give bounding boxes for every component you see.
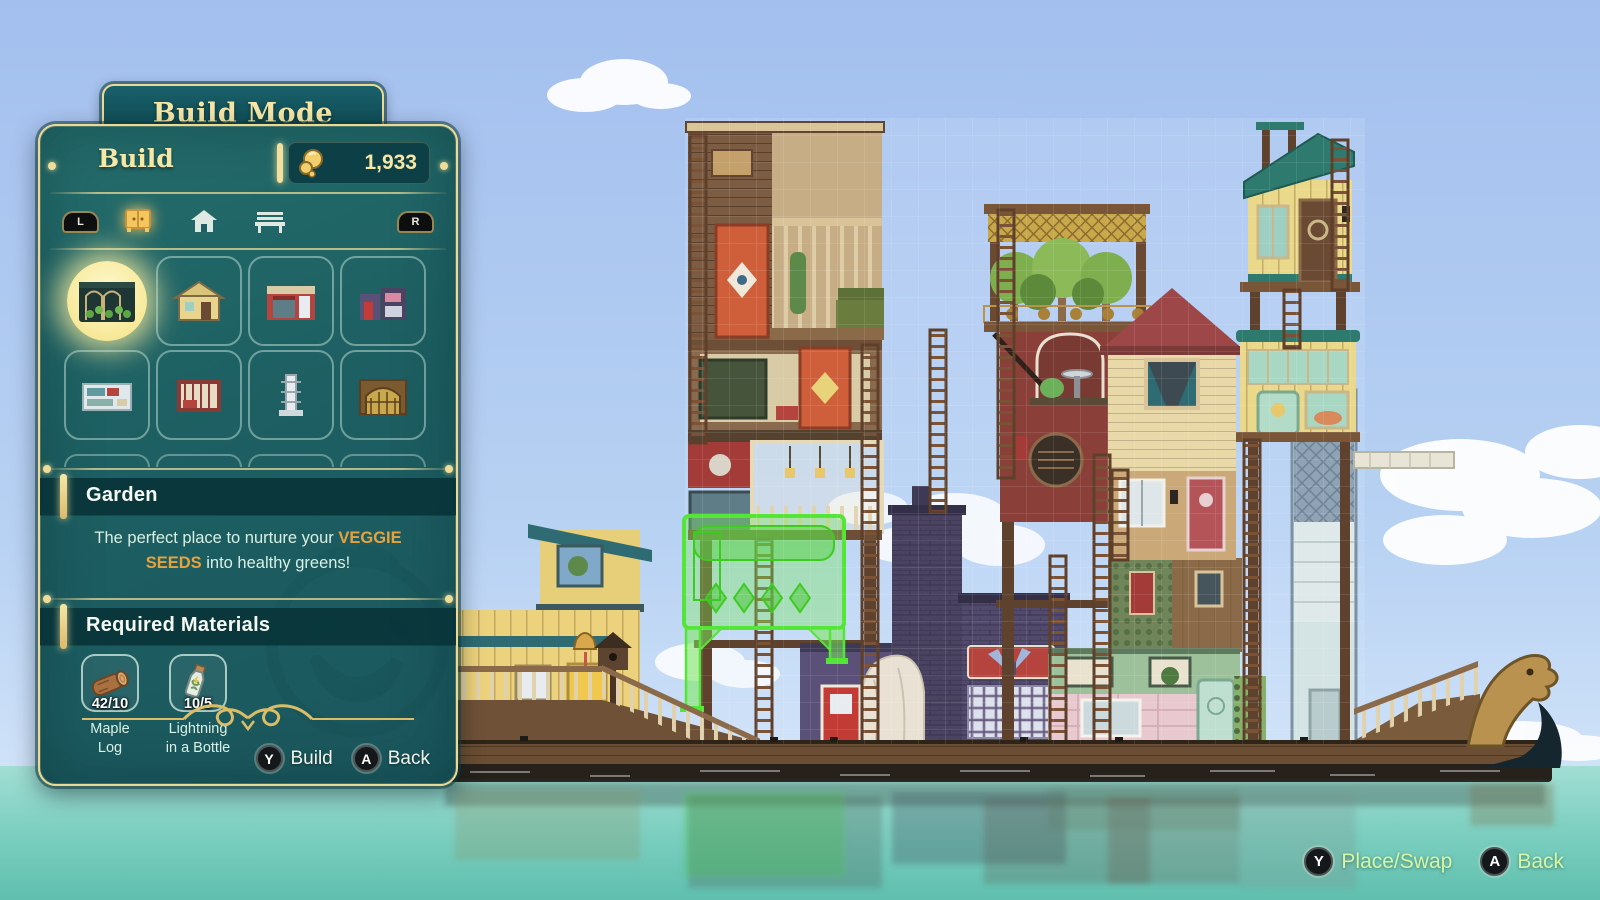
tab-structures[interactable] [188, 206, 220, 236]
build-grid-lines [685, 118, 1365, 744]
y-button-icon: Y [256, 745, 283, 772]
glim-coin-icon [297, 148, 327, 178]
currency-display: 1,933 [277, 142, 430, 184]
grid-item-7[interactable] [248, 350, 334, 440]
right-bumper-button[interactable]: R [397, 211, 434, 233]
build-action-label: Build [291, 748, 333, 770]
build-action: Y Build [256, 745, 333, 772]
materials-band: Required Materials [40, 608, 456, 645]
hud-back-action: A Back [1480, 847, 1564, 876]
grid-item-3[interactable] [248, 256, 334, 346]
decor-dot [43, 465, 51, 473]
a-button-icon: A [353, 745, 380, 772]
place-swap-label: Place/Swap [1341, 850, 1452, 874]
left-bumper-button[interactable]: L [62, 211, 99, 233]
decor-flourish [40, 702, 456, 738]
currency-cursor-bar [277, 143, 283, 183]
blueprint-grid [64, 256, 426, 440]
currency-amount: 1,933 [364, 151, 417, 175]
place-swap-action: Y Place/Swap [1304, 847, 1452, 876]
decor-dot [445, 595, 453, 603]
decor-dot [445, 465, 453, 473]
decor-dot [440, 162, 448, 170]
a-button-icon: A [1480, 847, 1509, 876]
category-tabbar: L [40, 198, 456, 246]
grid-item-2[interactable] [156, 256, 242, 346]
item-name: Garden [86, 484, 158, 507]
divider [50, 248, 446, 250]
materials-title: Required Materials [86, 614, 270, 637]
tab-buildings[interactable] [122, 206, 154, 236]
tab-furniture[interactable] [254, 206, 286, 236]
item-description: The perfect place to nurture your VEGGIE… [68, 526, 428, 576]
grid-next-row-peek [64, 454, 426, 467]
grid-item-5[interactable] [64, 350, 150, 440]
selected-item-glow [67, 261, 147, 341]
decor-dot [48, 162, 56, 170]
bench-icon [254, 208, 286, 234]
divider [50, 192, 446, 194]
grid-item-6[interactable] [156, 350, 242, 440]
panel-actions: Y Build A Back [256, 745, 431, 772]
panel-section-label: Build [98, 144, 174, 173]
section-accent-bar [60, 604, 67, 649]
back-action-label: Back [388, 748, 430, 770]
build-panel: Build Mode Build [38, 84, 460, 790]
hud-actions: Y Place/Swap A Back [1304, 847, 1564, 876]
decor-dot [43, 595, 51, 603]
garden-thumbnail [78, 278, 136, 324]
hud-back-label: Back [1517, 850, 1564, 874]
cabinet-icon [123, 207, 153, 235]
panel-body: Build 1,933 L [38, 124, 458, 786]
description-text: The perfect place to nurture your [94, 529, 338, 547]
grid-item-8[interactable] [340, 350, 426, 440]
item-name-band: Garden [40, 478, 456, 515]
grid-item-4[interactable] [340, 256, 426, 346]
divider [44, 598, 452, 600]
divider [44, 468, 452, 470]
game-screen: Build Mode Build [0, 0, 1600, 900]
currency-badge: 1,933 [288, 142, 430, 184]
y-button-icon: Y [1304, 847, 1333, 876]
grid-item-garden[interactable] [64, 256, 150, 346]
description-text: into healthy greens! [202, 554, 351, 572]
house-icon [189, 208, 219, 234]
back-action: A Back [353, 745, 430, 772]
section-accent-bar [60, 474, 67, 519]
